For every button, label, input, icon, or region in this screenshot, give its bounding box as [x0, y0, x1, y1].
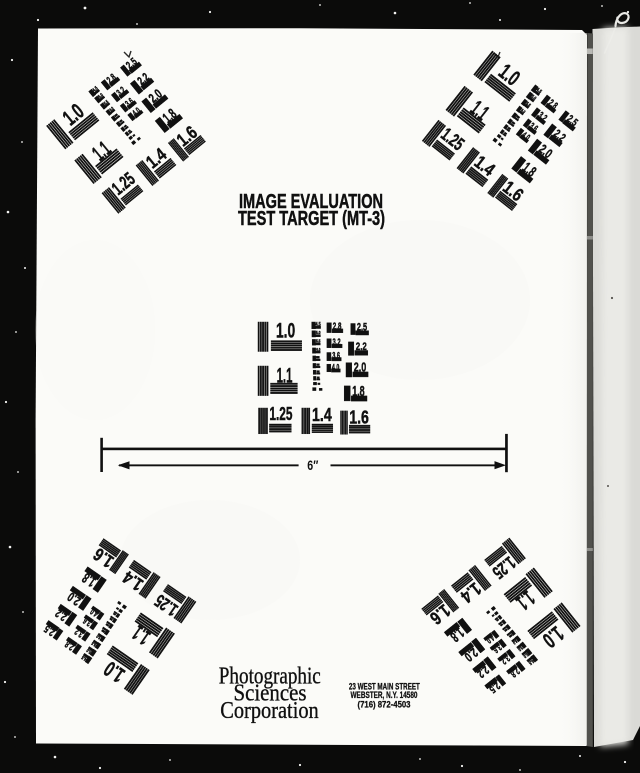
svg-text:TEST TARGET (MT-3): TEST TARGET (MT-3)	[238, 207, 385, 230]
svg-text:Corporation: Corporation	[220, 698, 319, 724]
svg-text:(716) 872-4503: (716) 872-4503	[358, 700, 411, 711]
svg-text:6″: 6″	[307, 458, 318, 473]
